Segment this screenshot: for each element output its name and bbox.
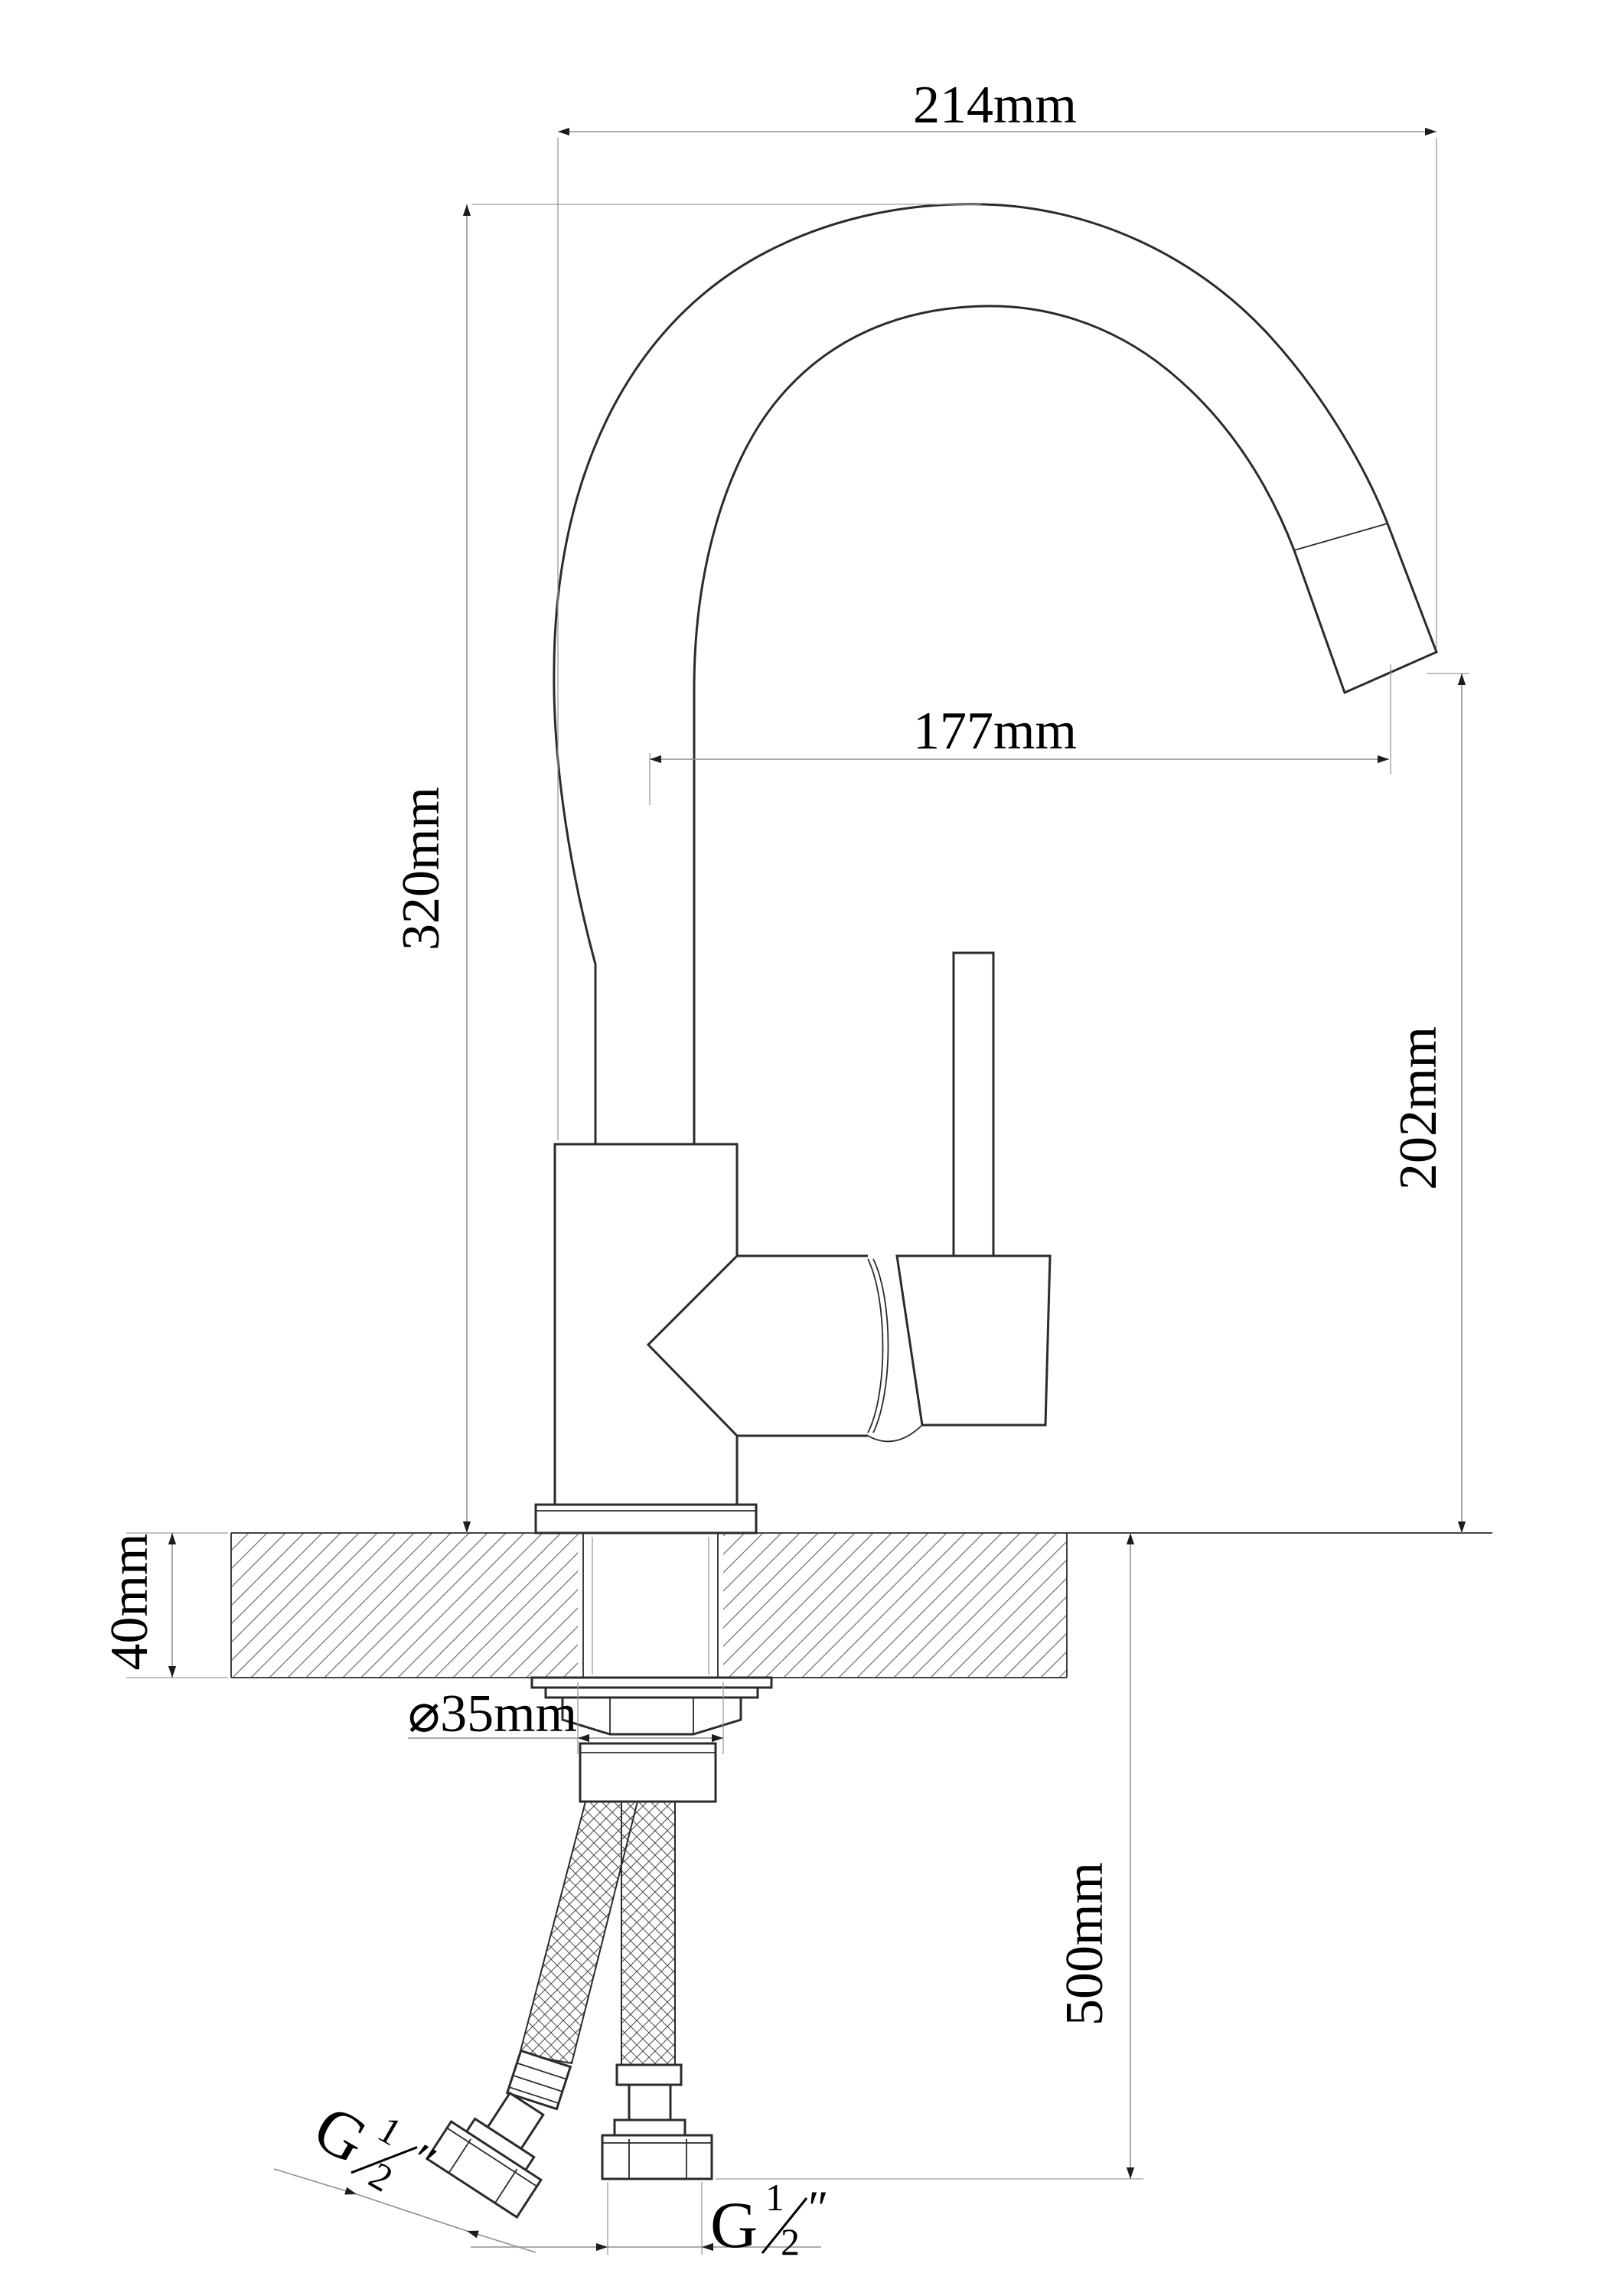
mounting-shank-walls	[583, 1533, 718, 1678]
faucet-dimension-drawing: 214mm 320mm 177mm 202mm 40mm ⌀35mm 500mm	[0, 0, 1624, 2296]
thread-right-G: G	[710, 2188, 758, 2262]
label-thread-left: G 1 2 ″	[302, 2079, 448, 2214]
joint-curve-1	[868, 1259, 883, 1433]
handle-lever	[954, 953, 993, 1256]
joint-curve-2	[873, 1259, 889, 1433]
label-thread-right: G 1 2 ″	[710, 2176, 829, 2263]
right-hose-collar	[615, 2120, 685, 2135]
thread-left-den: 2	[362, 2154, 400, 2200]
handle-base	[897, 1256, 1050, 1425]
label-spout-height: 320mm	[392, 787, 451, 951]
thread-left-G: G	[302, 2090, 380, 2177]
dimline-gleft-b	[467, 2231, 536, 2252]
label-hole-diameter: ⌀35mm	[408, 1684, 577, 1743]
dimline-gleft-mid	[357, 2194, 467, 2231]
countertop-hatch-right	[723, 1533, 1067, 1678]
label-spout-reach: 177mm	[913, 702, 1077, 761]
faucet	[536, 204, 1436, 1533]
thread-right-num: 1	[765, 2176, 784, 2219]
mounting-shank-inner-walls	[592, 1537, 709, 1675]
right-hose-tube	[629, 2085, 670, 2120]
label-outlet-clearance: 202mm	[1389, 1026, 1448, 1190]
supply-hoses	[427, 1802, 712, 2217]
thread-right-inch: ″	[808, 2180, 829, 2235]
drawing-canvas: 214mm 320mm 177mm 202mm 40mm ⌀35mm 500mm	[0, 0, 1624, 2296]
countertop-section	[231, 1533, 1492, 1678]
right-hose-nut	[602, 2135, 712, 2179]
spout-outline	[554, 204, 1436, 1144]
base-flange	[536, 1505, 756, 1533]
right-hose-ferrule	[617, 2065, 681, 2085]
label-hose-length: 500mm	[1055, 1862, 1114, 2026]
thread-right-den: 2	[781, 2220, 800, 2263]
mounting-nut	[563, 1698, 741, 1734]
label-deck-thickness: 40mm	[100, 1534, 159, 1671]
right-hose-braid	[621, 1802, 675, 2065]
label-spout-width: 214mm	[913, 76, 1077, 135]
countertop-hatch-left	[231, 1533, 578, 1678]
left-hose-braid	[520, 1802, 638, 2063]
